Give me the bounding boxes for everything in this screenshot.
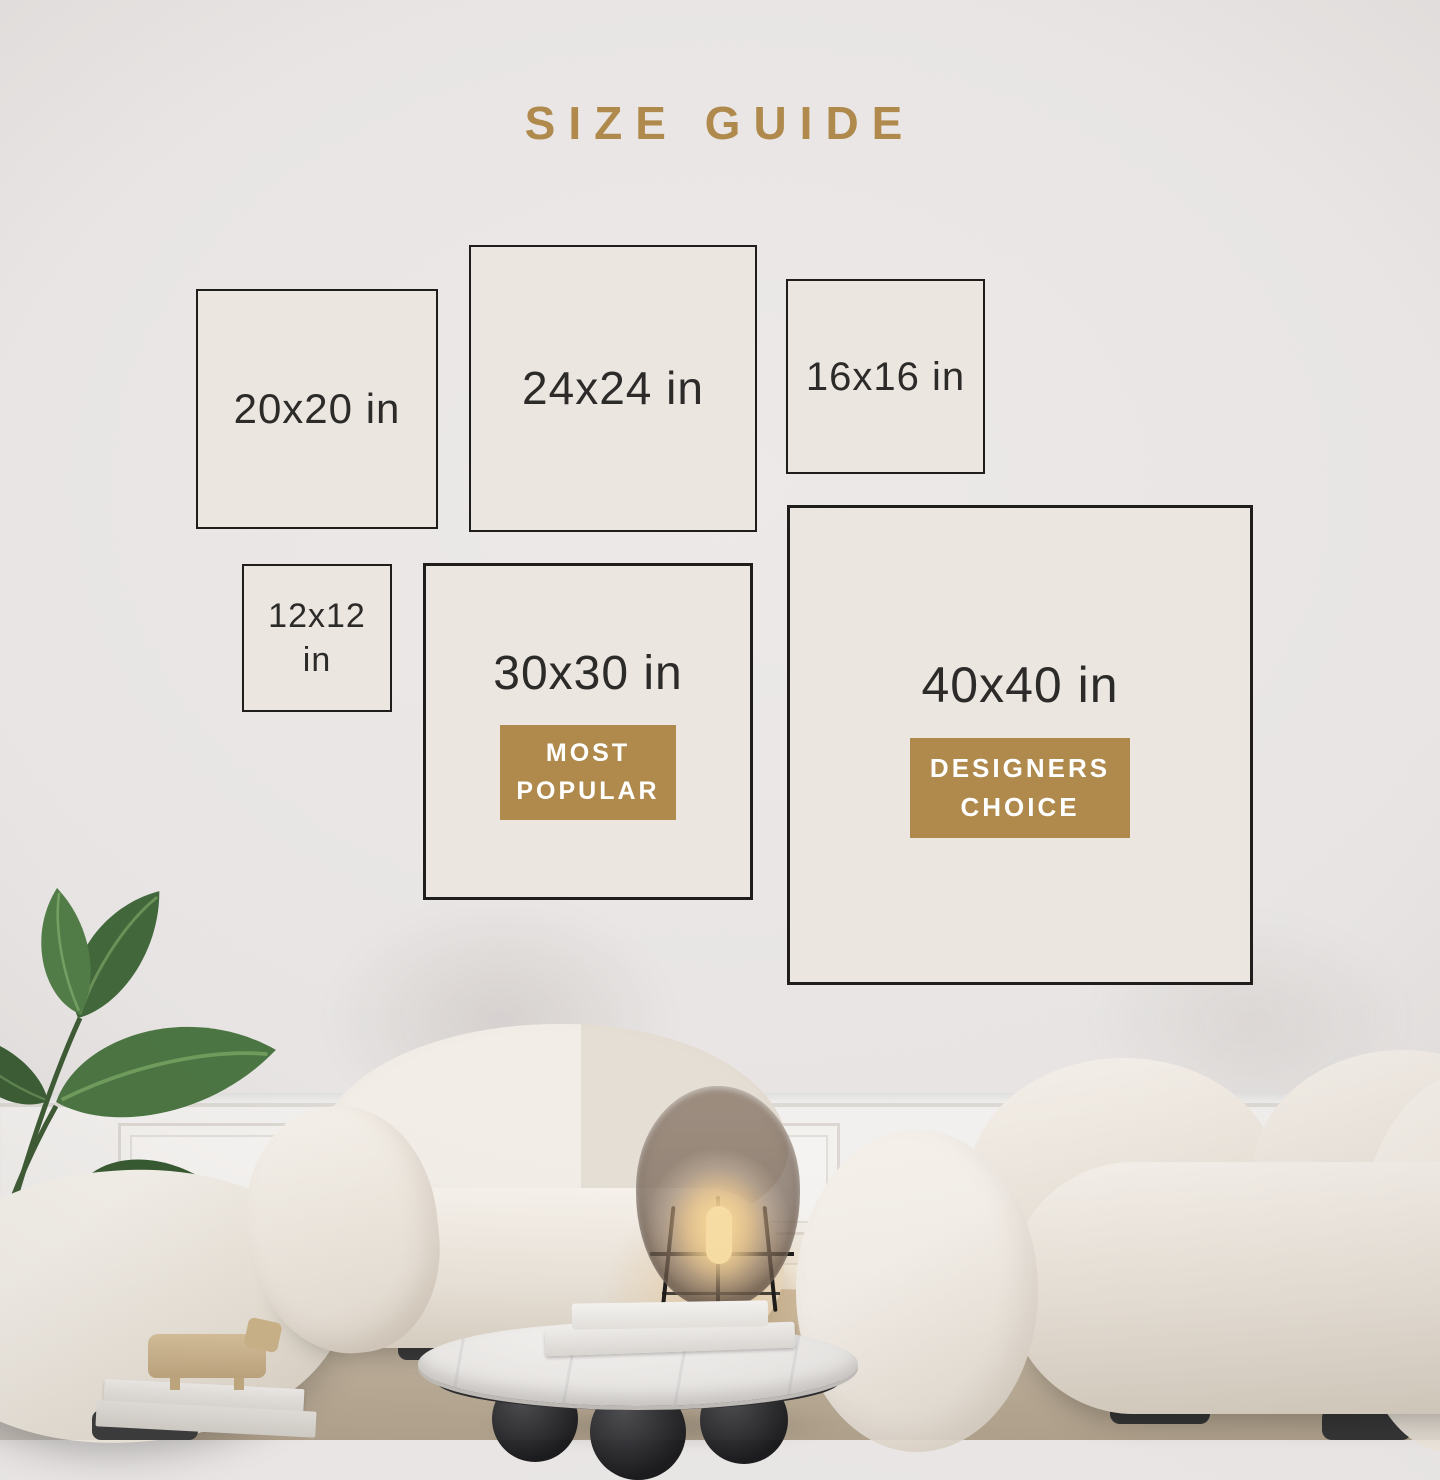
most-popular-badge: MOST POPULAR [500, 725, 676, 820]
page-title: SIZE GUIDE [0, 96, 1440, 150]
size-label: 30x30 in [493, 643, 682, 705]
size-box-12x12: 12x12 in [242, 564, 392, 712]
plant-leaf [48, 1013, 282, 1127]
size-label: 12x12 in [259, 594, 375, 682]
designers-choice-badge: DESIGNERS CHOICE [910, 738, 1130, 838]
plant-leaf [36, 886, 94, 1017]
size-box-16x16: 16x16 in [786, 279, 985, 474]
floor-lamp-shade [636, 1086, 800, 1308]
size-label: 24x24 in [522, 359, 704, 419]
size-box-30x30: 30x30 in MOST POPULAR [423, 563, 753, 900]
size-box-40x40: 40x40 in DESIGNERS CHOICE [787, 505, 1253, 985]
book-stack-table [572, 1300, 768, 1329]
size-label: 16x16 in [806, 351, 965, 403]
size-box-24x24: 24x24 in [469, 245, 757, 532]
size-label: 40x40 in [921, 653, 1118, 718]
size-label: 20x20 in [234, 382, 401, 437]
size-box-20x20: 20x20 in [196, 289, 438, 529]
size-guide-room-scene: { "title": "SIZE GUIDE", "colors": { "ac… [0, 0, 1440, 1440]
lamp-bulb [706, 1206, 732, 1264]
plant-leaf [0, 1013, 57, 1124]
sofa-seat-cushion [1008, 1162, 1440, 1414]
